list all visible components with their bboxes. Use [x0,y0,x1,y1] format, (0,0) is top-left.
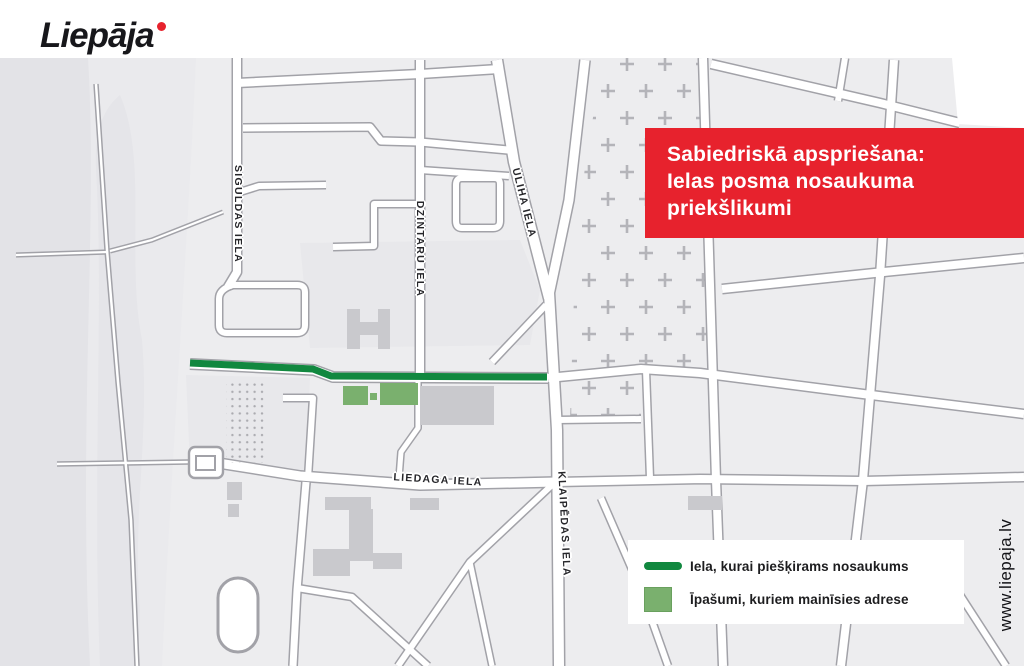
affected-properties [343,383,418,405]
legend-label-properties: Īpašumi, kuriem mainīsies adrese [690,592,909,607]
poster-canvas: { "logo": { "wordmark": "Liepāja" }, "ba… [0,0,1024,666]
street-label-dzintaru: DZINTARU IELA [414,201,426,298]
legend-label-street: Iela, kurai piešķirams nosaukums [690,559,909,574]
logo-wordmark: Liepāja [40,16,154,55]
street-label-siguldas: SIGULDAS IELA [232,165,244,263]
legend-item-properties: Īpašumi, kuriem mainīsies adrese [644,586,964,612]
legend-item-street: Iela, kurai piešķirams nosaukums [644,553,964,579]
legend-swatch-box [644,587,690,612]
map-legend: Iela, kurai piešķirams nosaukums Īpašumi… [628,540,964,624]
map-edge [952,58,1024,128]
stadium-oval [218,578,258,652]
legend-swatch-box [644,562,690,570]
legend-line-swatch-icon [644,562,682,570]
banner-line-3: priekšlikumi [667,195,1014,222]
liepaja-logo: Liepāja [40,16,163,56]
banner-line-1: Sabiedriskā apspriešana: [667,141,1014,168]
loop-structure [189,447,223,478]
legend-square-swatch-icon [644,587,672,612]
logo-red-dot-icon [157,22,166,31]
website-url: www.liepaja.lv [996,500,1016,650]
banner-line-2: Ielas posma nosaukuma [667,168,1014,195]
announcement-banner: Sabiedriskā apspriešana: Ielas posma nos… [645,128,1024,238]
parking-dots [226,383,266,463]
